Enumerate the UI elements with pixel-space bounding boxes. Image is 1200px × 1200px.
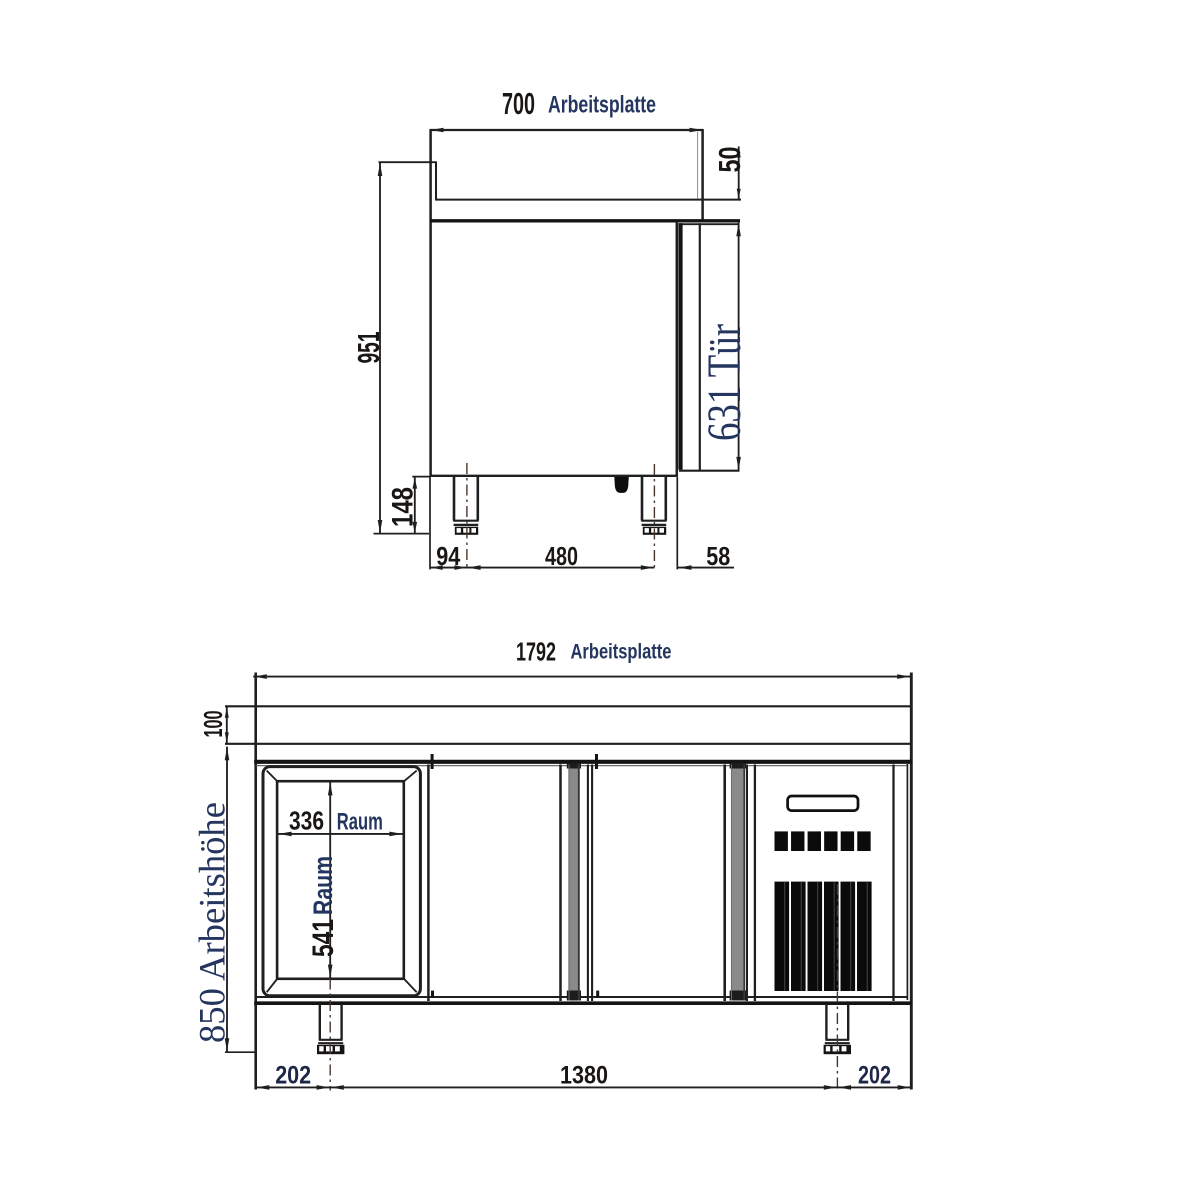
svg-text:100: 100 xyxy=(198,711,228,738)
svg-text:700: 700 xyxy=(502,86,535,121)
svg-text:1380: 1380 xyxy=(560,1062,608,1090)
svg-text:Arbeitsplatte: Arbeitsplatte xyxy=(571,640,672,664)
svg-text:Raum: Raum xyxy=(337,808,383,835)
svg-text:480: 480 xyxy=(545,541,578,571)
svg-text:94: 94 xyxy=(436,541,460,571)
svg-text:850 Arbeitshöhe: 850 Arbeitshöhe xyxy=(192,802,233,1043)
svg-text:58: 58 xyxy=(706,541,730,571)
svg-text:336: 336 xyxy=(289,805,324,835)
svg-text:Arbeitsplatte: Arbeitsplatte xyxy=(548,91,656,118)
svg-text:202: 202 xyxy=(275,1062,311,1090)
svg-text:148: 148 xyxy=(387,487,420,527)
svg-text:951: 951 xyxy=(351,332,386,364)
svg-text:50: 50 xyxy=(712,147,747,173)
svg-text:631 Tür: 631 Tür xyxy=(698,324,751,441)
svg-text:Raum: Raum xyxy=(308,856,338,915)
svg-text:541: 541 xyxy=(307,919,340,957)
svg-text:202: 202 xyxy=(858,1062,891,1090)
svg-text:1792: 1792 xyxy=(516,637,556,667)
